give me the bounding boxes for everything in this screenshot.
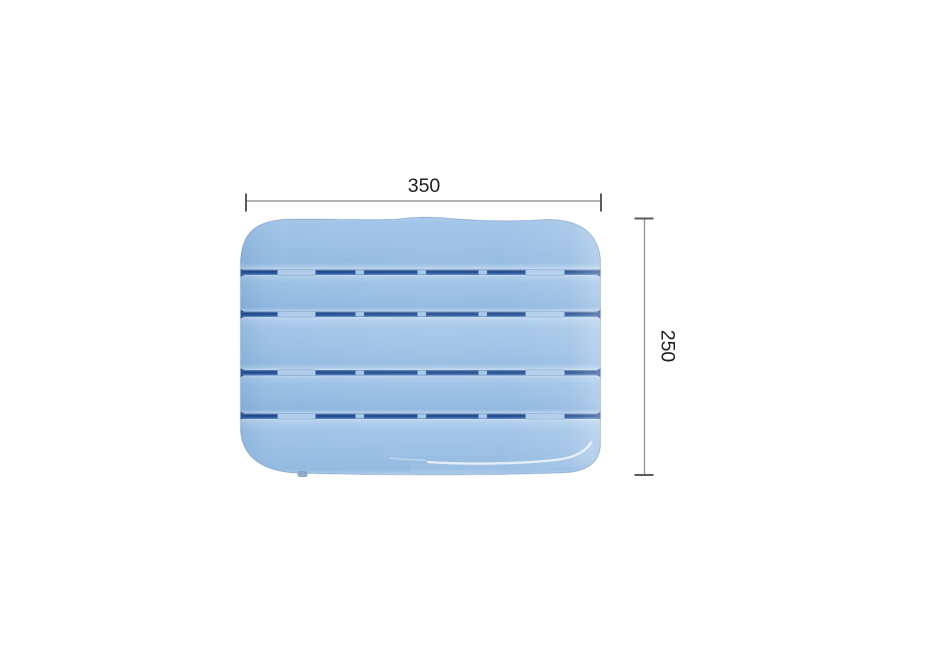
svg-text:250: 250 — [657, 330, 679, 363]
svg-text:350: 350 — [408, 175, 441, 197]
